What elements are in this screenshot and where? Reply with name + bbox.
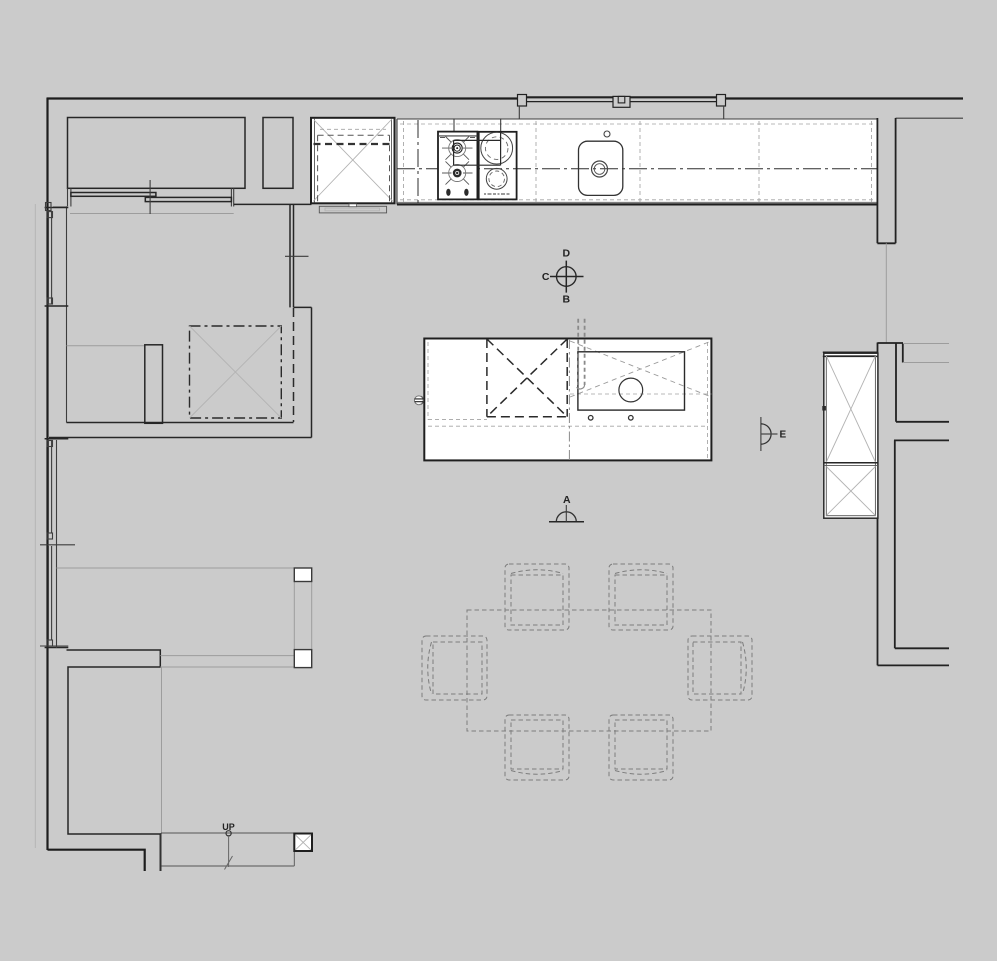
svg-text:B: B bbox=[563, 294, 571, 306]
svg-text:D: D bbox=[563, 248, 571, 260]
svg-text:A: A bbox=[563, 494, 571, 506]
svg-text:E: E bbox=[780, 430, 787, 441]
svg-text:C: C bbox=[542, 271, 550, 283]
